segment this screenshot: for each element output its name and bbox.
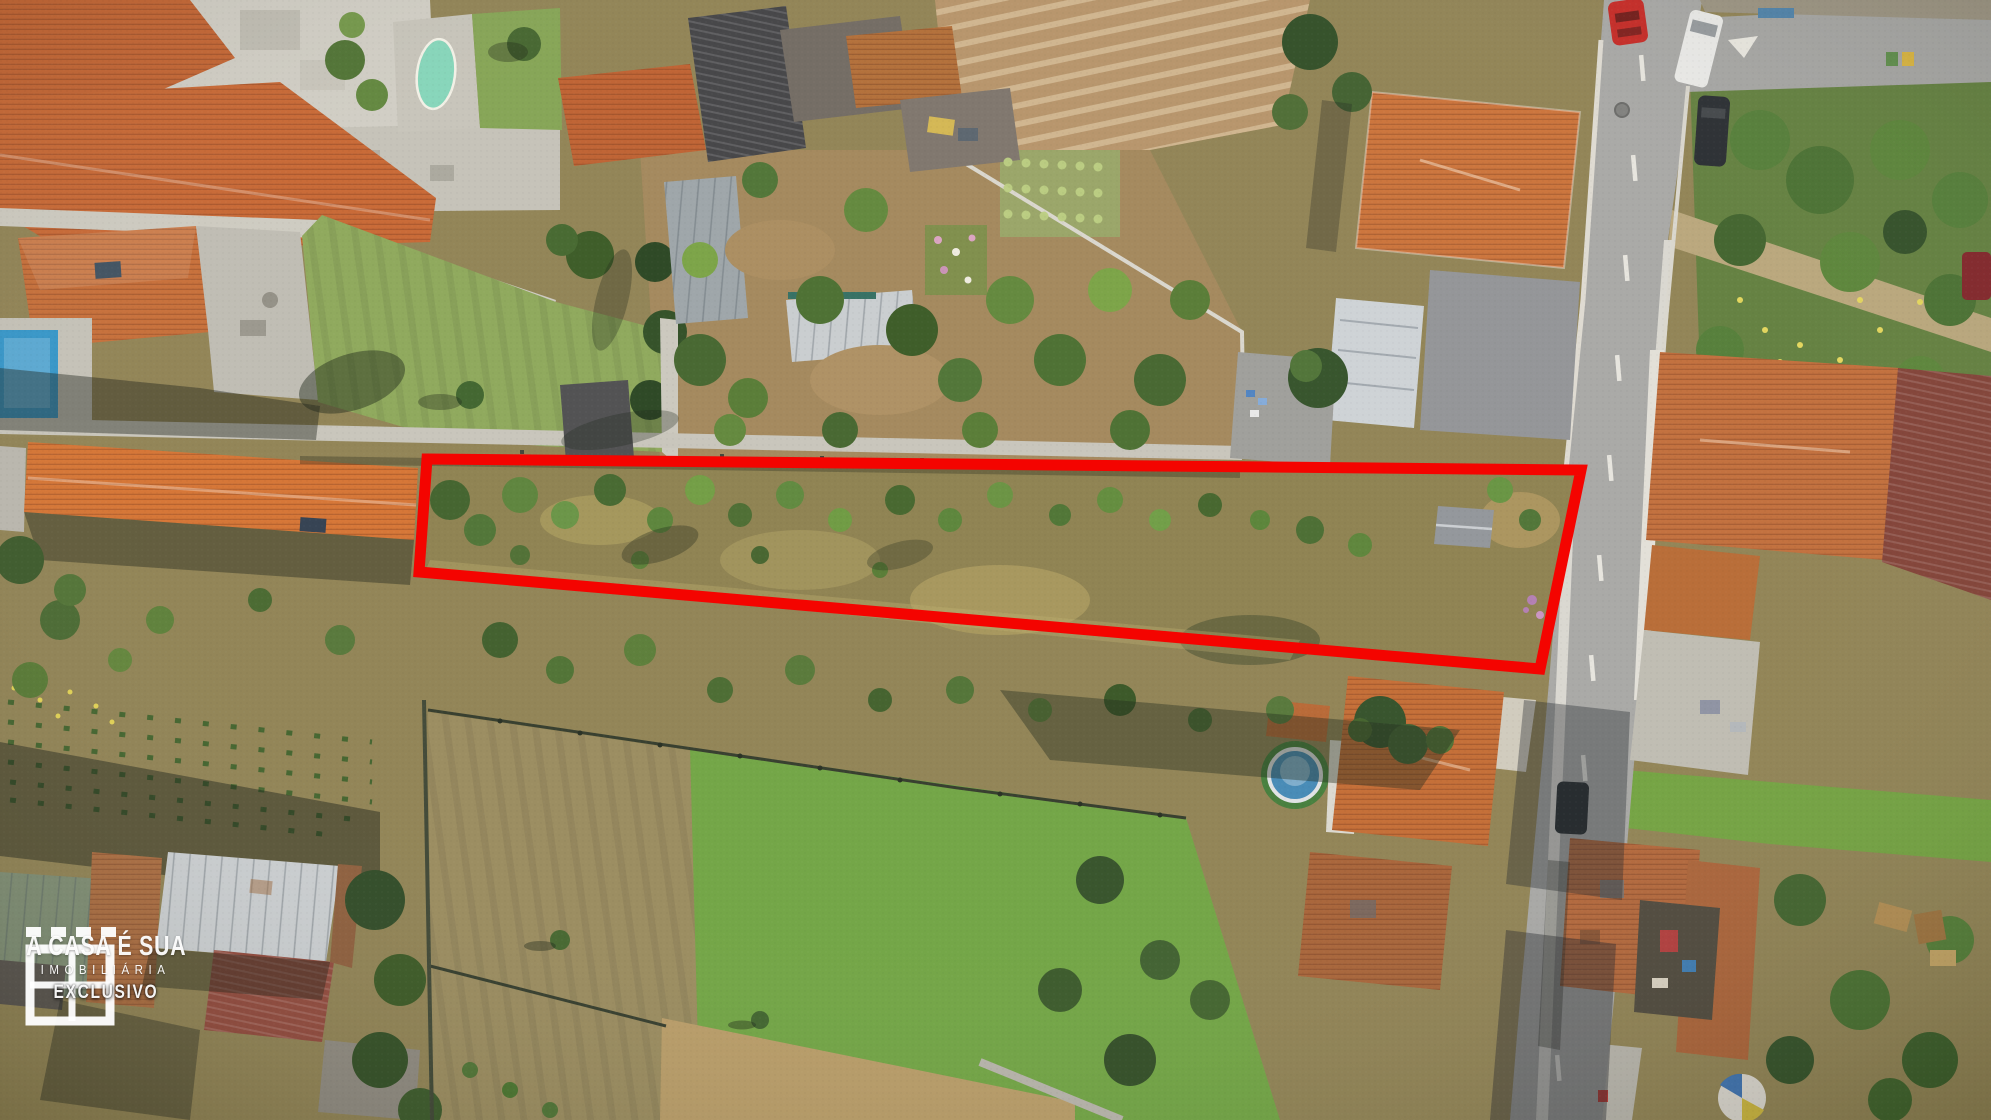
aerial-photo: A CASA É SUA IMOBILIÁRIA EXCLUSIVO: [0, 0, 1991, 1120]
watermark-badge: EXCLUSIVO: [54, 982, 159, 1004]
aerial-photo-canvas: [0, 0, 1991, 1120]
watermark-brand: A CASA É SUA: [26, 930, 186, 962]
vignette: [0, 0, 1991, 1120]
watermark-subtitle: IMOBILIÁRIA: [41, 963, 171, 977]
watermark: A CASA É SUA IMOBILIÁRIA EXCLUSIVO: [24, 926, 188, 1004]
